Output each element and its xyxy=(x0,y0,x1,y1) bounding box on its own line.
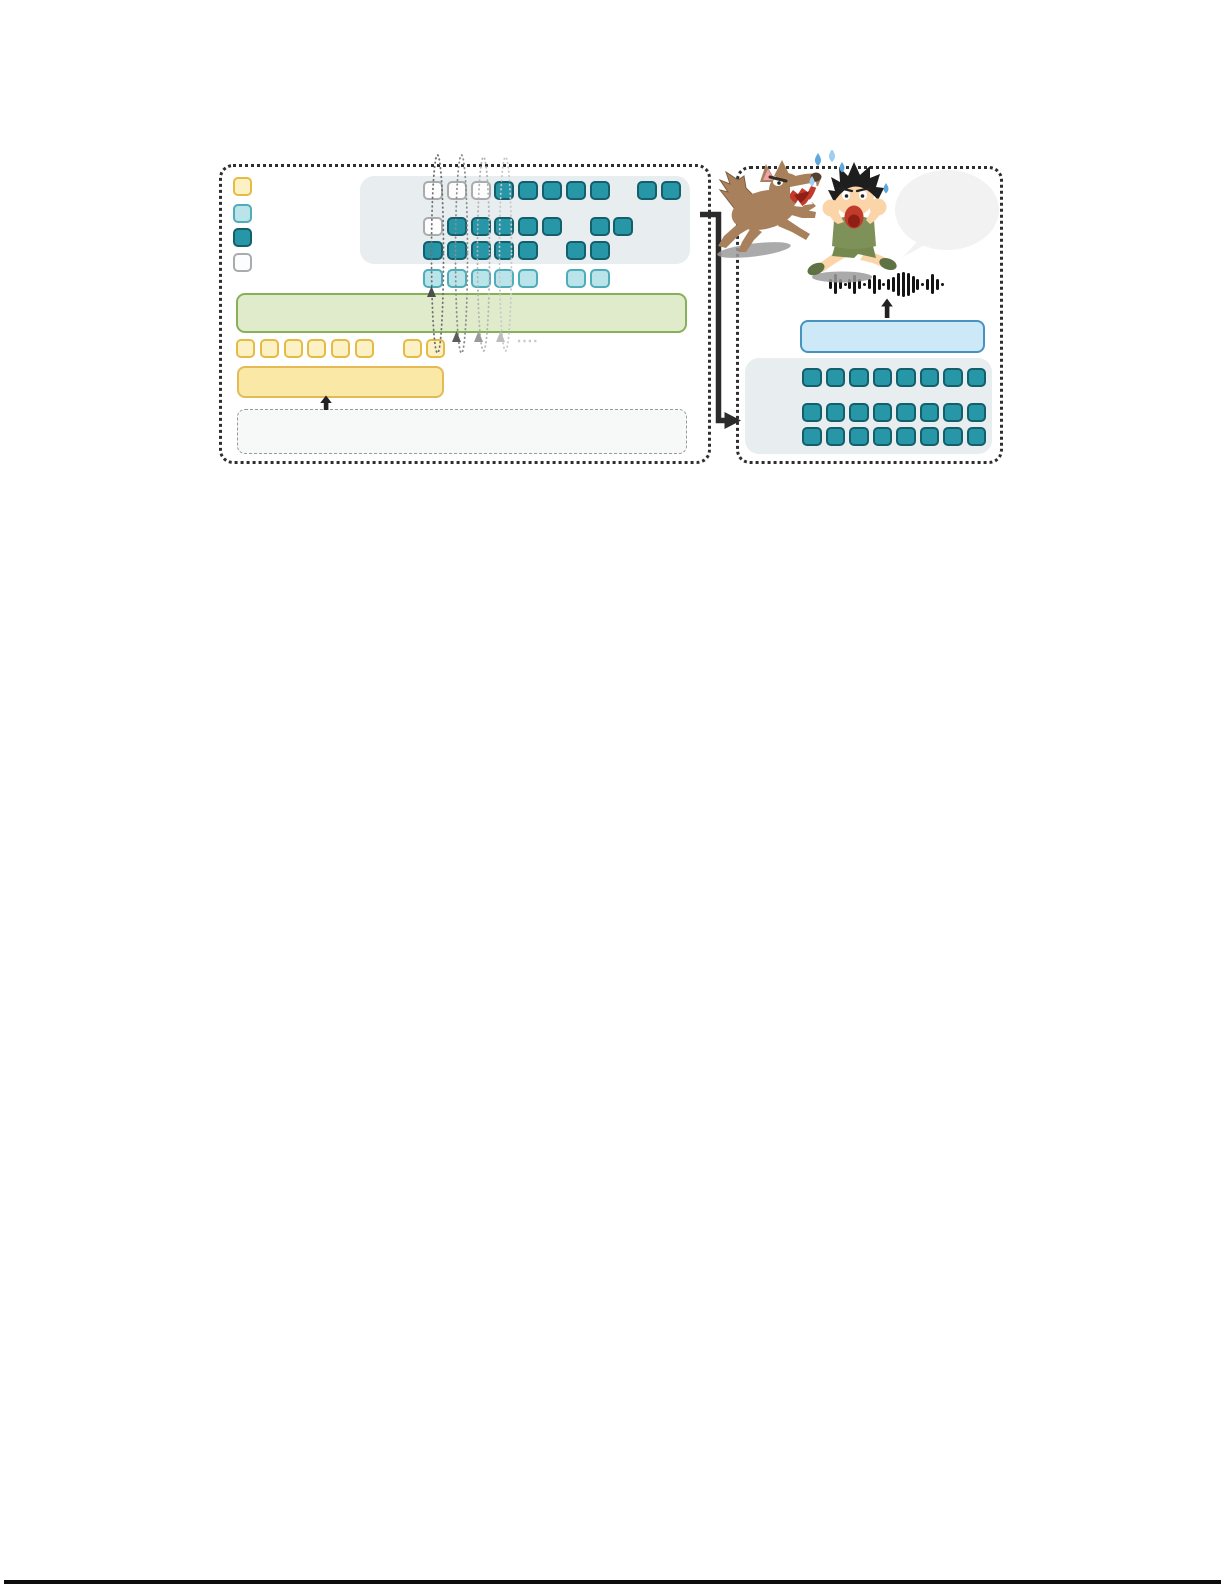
acoustic-cell-teal-token xyxy=(849,427,869,446)
waveform-bar xyxy=(897,273,900,296)
vocoder-bar xyxy=(800,320,985,353)
transformer-bar xyxy=(236,293,687,333)
semantic-row-cell-cyan-token xyxy=(423,269,443,288)
waveform-bar xyxy=(926,279,929,290)
text-encoder-bar xyxy=(237,366,444,398)
acoustic-cell-teal-token xyxy=(943,368,963,387)
waveform-bar xyxy=(892,277,895,292)
acoustic-cell-teal-token xyxy=(920,427,940,446)
grid-cell-white-token xyxy=(423,217,443,236)
grid-cell-teal-token xyxy=(518,181,538,200)
acoustic-cell-teal-token xyxy=(849,368,869,387)
semantic-row-cell-cyan-token xyxy=(494,269,514,288)
waveform-bar xyxy=(844,283,847,286)
grid-cell-teal-token xyxy=(590,217,610,236)
waveform-bar xyxy=(839,279,842,289)
text-row-cell-yellow-token xyxy=(260,339,279,358)
grid-cell-white-token xyxy=(423,181,443,200)
waveform-bar xyxy=(907,273,910,296)
grid-cell-teal-token xyxy=(518,217,538,236)
grid-cell-teal-token xyxy=(447,217,467,236)
waveform-bar xyxy=(858,279,861,289)
acoustic-cell-teal-token xyxy=(967,368,987,387)
waveform-bar xyxy=(936,279,939,290)
grid-cell-white-token xyxy=(447,181,467,200)
text-row-cell-yellow-token xyxy=(355,339,374,358)
grid-cell-teal-token xyxy=(613,217,633,236)
text-row-cell-yellow-token xyxy=(236,339,255,358)
acoustic-cell-teal-token xyxy=(873,368,893,387)
grid-cell-teal-token xyxy=(471,217,491,236)
legend-swatch-yellow-token xyxy=(233,177,252,196)
waveform-bar xyxy=(873,275,876,294)
waveform-bar xyxy=(863,283,866,286)
acoustic-cell-teal-token xyxy=(826,403,846,422)
acoustic-cell-teal-token xyxy=(896,368,916,387)
waveform-bar xyxy=(829,279,832,289)
waveform-bar xyxy=(912,276,915,293)
waveform-bar xyxy=(834,274,837,294)
legend-swatch-cyan-token xyxy=(233,204,252,223)
grid-cell-teal-token xyxy=(423,241,443,260)
semantic-row-cell-cyan-token xyxy=(590,269,610,288)
grid-cell-teal-token xyxy=(494,241,514,260)
page-bottom-rule xyxy=(4,1580,1221,1584)
acoustic-cell-teal-token xyxy=(943,403,963,422)
waveform-bar xyxy=(941,283,944,286)
acoustic-cell-teal-token xyxy=(896,427,916,446)
acoustic-cell-teal-token xyxy=(873,403,893,422)
acoustic-cell-teal-token xyxy=(873,427,893,446)
grid-cell-teal-token xyxy=(494,181,514,200)
waveform-bar xyxy=(878,279,881,290)
text-row-cell-yellow-token xyxy=(426,339,445,358)
acoustic-cell-teal-token xyxy=(802,368,822,387)
grid-cell-teal-token xyxy=(566,241,586,260)
grid-cell-teal-token xyxy=(566,181,586,200)
grid-cell-white-token xyxy=(471,181,491,200)
acoustic-cell-teal-token xyxy=(802,427,822,446)
text-row-cell-yellow-token xyxy=(284,339,303,358)
semantic-row-cell-cyan-token xyxy=(447,269,467,288)
text-row-cell-yellow-token xyxy=(331,339,350,358)
acoustic-cell-teal-token xyxy=(920,368,940,387)
text-row-cell-yellow-token xyxy=(403,339,422,358)
acoustic-cell-teal-token xyxy=(826,368,846,387)
waveform-bar xyxy=(848,279,851,289)
acoustic-cell-teal-token xyxy=(967,403,987,422)
acoustic-cell-teal-token xyxy=(920,403,940,422)
waveform-bar xyxy=(868,279,871,289)
text-row-cell-yellow-token xyxy=(307,339,326,358)
input-box xyxy=(237,409,687,454)
acoustic-cell-teal-token xyxy=(967,427,987,446)
grid-cell-teal-token xyxy=(518,241,538,260)
grid-cell-teal-token xyxy=(471,241,491,260)
grid-cell-teal-token xyxy=(637,181,657,200)
acoustic-cell-teal-token xyxy=(802,403,822,422)
acoustic-cell-teal-token xyxy=(826,427,846,446)
semantic-row-cell-cyan-token xyxy=(518,269,538,288)
grid-cell-teal-token xyxy=(590,241,610,260)
grid-cell-teal-token xyxy=(447,241,467,260)
semantic-row-cell-cyan-token xyxy=(471,269,491,288)
acoustic-cell-teal-token xyxy=(896,403,916,422)
waveform-bar xyxy=(921,283,924,286)
waveform-bar xyxy=(931,274,934,294)
waveform-bar xyxy=(916,279,919,290)
legend-swatch-white-token xyxy=(233,253,252,272)
waveform-bar xyxy=(853,275,856,294)
acoustic-cell-teal-token xyxy=(849,403,869,422)
grid-cell-teal-token xyxy=(590,181,610,200)
paper-page xyxy=(0,0,1225,1585)
grid-cell-teal-token xyxy=(494,217,514,236)
waveform-bar xyxy=(902,272,905,297)
grid-cell-teal-token xyxy=(661,181,681,200)
legend-swatch-teal-token xyxy=(233,228,252,247)
waveform-bar xyxy=(887,279,890,290)
semantic-row-cell-cyan-token xyxy=(566,269,586,288)
grid-cell-teal-token xyxy=(542,217,562,236)
grid-cell-teal-token xyxy=(542,181,562,200)
acoustic-cell-teal-token xyxy=(943,427,963,446)
